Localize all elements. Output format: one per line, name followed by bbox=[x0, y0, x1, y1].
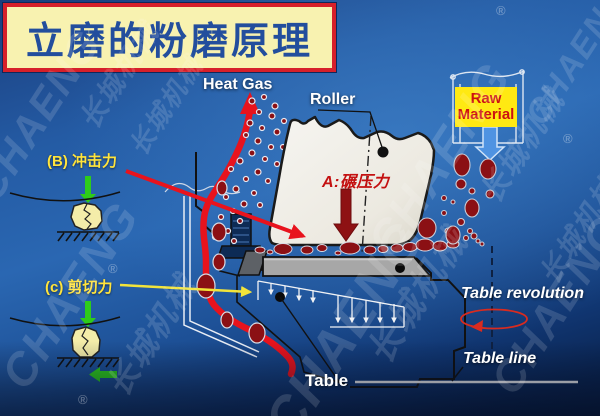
grinding-table bbox=[238, 251, 430, 276]
shear-force-mini-diagram bbox=[10, 301, 120, 382]
shear-motion-arrow bbox=[89, 367, 117, 382]
heat-gas-label: Heat Gas bbox=[203, 76, 272, 94]
table-revolution-label: Table revolution bbox=[461, 285, 584, 303]
table-pivot-dot bbox=[395, 263, 405, 273]
raw-material-label-line2: Material bbox=[458, 107, 515, 123]
raw-material-label-line1: Raw bbox=[471, 91, 502, 107]
table-label: Table bbox=[305, 371, 348, 391]
raw-material-box: Raw Material bbox=[455, 87, 517, 127]
title-banner: 立磨的粉磨原理 bbox=[3, 3, 336, 72]
diagram-canvas: 立磨的粉磨原理 Heat Gas Roller A:碾压力 (B) 冲击力 (c… bbox=[0, 0, 600, 416]
table-line-label: Table line bbox=[463, 350, 536, 368]
page-title: 立磨的粉磨原理 bbox=[26, 10, 313, 65]
roller-leader-dot bbox=[378, 147, 389, 158]
impact-force-mini-diagram bbox=[10, 176, 120, 241]
grinding-force-label: A:碾压力 bbox=[322, 168, 389, 192]
table-line bbox=[355, 367, 578, 382]
pressure-distribution-diagram bbox=[258, 281, 404, 383]
particle-cracked bbox=[71, 203, 102, 230]
shear-force-arrow bbox=[120, 285, 250, 292]
shear-force-label: (c) 剪切力 bbox=[45, 276, 113, 297]
roller-label: Roller bbox=[310, 91, 355, 109]
impact-force-label: (B) 冲击力 bbox=[47, 150, 117, 171]
